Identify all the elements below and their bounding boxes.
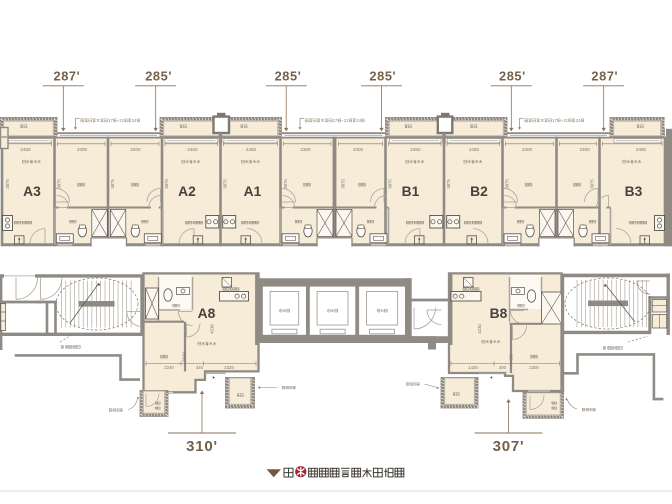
svg-text:17: 17 <box>108 118 113 123</box>
svg-text:2450: 2450 <box>410 147 421 152</box>
svg-text:21: 21 <box>563 118 568 123</box>
svg-text:3875: 3875 <box>110 179 115 189</box>
svg-text:B3: B3 <box>625 184 643 199</box>
svg-text:3875: 3875 <box>388 179 393 189</box>
svg-text:2450: 2450 <box>636 147 647 152</box>
svg-text:2240: 2240 <box>164 365 174 370</box>
svg-text:310': 310' <box>186 438 218 455</box>
svg-text:21: 21 <box>344 118 349 123</box>
svg-text:1425: 1425 <box>468 365 478 370</box>
svg-text:2450: 2450 <box>187 147 198 152</box>
svg-text:2300: 2300 <box>77 147 88 152</box>
svg-text:340: 340 <box>196 365 204 370</box>
svg-text:2300: 2300 <box>353 147 364 152</box>
svg-text:A3: A3 <box>23 184 41 199</box>
svg-text:3875: 3875 <box>446 179 451 189</box>
svg-text:24: 24 <box>576 118 581 123</box>
svg-text:287': 287' <box>591 68 618 83</box>
svg-text:285': 285' <box>499 68 526 83</box>
svg-text:3875: 3875 <box>341 179 346 189</box>
svg-text:2300: 2300 <box>529 365 539 370</box>
svg-text:3875: 3875 <box>505 179 510 189</box>
svg-text:2450: 2450 <box>469 147 480 152</box>
svg-text:285': 285' <box>275 68 302 83</box>
svg-text:3875: 3875 <box>5 179 10 189</box>
svg-text:307': 307' <box>493 438 525 455</box>
svg-text:2300: 2300 <box>300 147 311 152</box>
svg-text:2325: 2325 <box>224 365 234 370</box>
svg-text:21: 21 <box>119 118 124 123</box>
svg-text:2300: 2300 <box>130 147 141 152</box>
svg-text:3875: 3875 <box>57 179 62 189</box>
svg-text:24: 24 <box>356 118 361 123</box>
svg-text:A2: A2 <box>178 184 196 199</box>
svg-text:300: 300 <box>499 365 507 370</box>
svg-text:B8: B8 <box>490 306 508 321</box>
svg-text:3875: 3875 <box>164 179 169 189</box>
svg-text:17: 17 <box>552 118 557 123</box>
svg-text:3875: 3875 <box>283 179 288 189</box>
svg-text:285': 285' <box>145 68 172 83</box>
svg-text:3875: 3875 <box>590 179 595 189</box>
svg-text:2450: 2450 <box>20 147 31 152</box>
svg-text:A8: A8 <box>198 306 216 321</box>
svg-text:285': 285' <box>369 68 396 83</box>
svg-text:17: 17 <box>333 118 338 123</box>
svg-text:24: 24 <box>132 118 137 123</box>
svg-text:300: 300 <box>509 353 514 361</box>
svg-text:2450: 2450 <box>246 147 257 152</box>
svg-text:B1: B1 <box>402 184 420 199</box>
svg-text:4230: 4230 <box>477 324 482 334</box>
svg-text:287': 287' <box>54 68 81 83</box>
svg-text:2300: 2300 <box>522 147 533 152</box>
svg-text:3040: 3040 <box>182 352 187 362</box>
svg-text:A1: A1 <box>244 184 262 199</box>
svg-text:B2: B2 <box>470 184 488 199</box>
svg-text:2300: 2300 <box>579 147 590 152</box>
svg-text:4230: 4230 <box>210 324 215 334</box>
svg-text:3875: 3875 <box>223 179 228 189</box>
